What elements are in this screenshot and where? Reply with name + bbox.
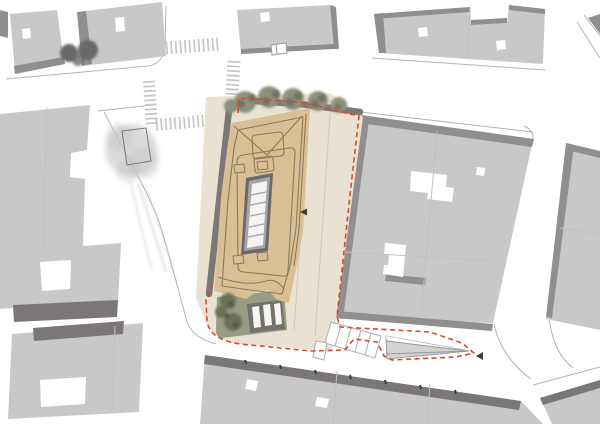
plaza-tree-canopy (105, 124, 159, 182)
building-edge-shadow (588, 14, 600, 34)
roof-tab (233, 255, 244, 264)
courtyard-opening (476, 167, 485, 176)
curb-line (533, 367, 600, 385)
tree (282, 88, 304, 110)
roof-tab (234, 164, 245, 173)
tree-speckle (228, 301, 234, 307)
vehicle-body (271, 43, 287, 55)
tree-canopy-blob (116, 158, 140, 182)
tree (308, 91, 328, 111)
tree-speckle (294, 92, 302, 100)
crosswalk (232, 61, 234, 95)
tree-speckle (318, 94, 326, 102)
tree-speckle (233, 322, 239, 328)
roof-tab (257, 252, 268, 261)
facade-tick (315, 370, 316, 374)
courtyard-opening (115, 17, 125, 32)
tree-speckle (272, 90, 280, 98)
tree-streak (138, 182, 166, 272)
courtyard-opening (418, 27, 428, 37)
facade-tick (420, 385, 421, 389)
garden-grate-bars (252, 303, 282, 328)
curb-line (549, 320, 573, 368)
tree-speckle (335, 104, 341, 110)
crosswalk (156, 120, 213, 125)
facade-tick (350, 375, 351, 379)
roof-tab (257, 161, 268, 170)
parked-vehicle (271, 43, 287, 55)
facade-tick (385, 380, 386, 384)
tree-speckle (248, 94, 256, 102)
building-block (546, 143, 600, 330)
tree-canopy-blob (106, 124, 134, 152)
curb-line (494, 325, 531, 379)
courtyard-opening (496, 40, 506, 50)
facade-tick (280, 365, 281, 369)
facade-tick (245, 360, 246, 364)
crosswalk (149, 81, 152, 127)
tree-streak (144, 184, 176, 280)
curb-line (98, 105, 152, 111)
building-edge-shadow (0, 10, 8, 38)
courtyard-opening (40, 260, 71, 291)
crosswalk (166, 44, 219, 48)
tree (72, 54, 84, 66)
courtyard-opening (40, 377, 86, 407)
plaza-tree-streaks (130, 180, 176, 280)
courtyard-opening (260, 12, 270, 22)
building-block (336, 119, 533, 323)
courtyard-opening (22, 28, 31, 39)
site-plan (0, 0, 600, 424)
facade-tick (455, 390, 456, 394)
triangular-ramp (386, 336, 469, 359)
tree-speckle (262, 97, 270, 105)
tree-speckle (225, 314, 230, 319)
courtyard-opening (245, 379, 258, 391)
entry-arrow-icon (476, 352, 483, 360)
